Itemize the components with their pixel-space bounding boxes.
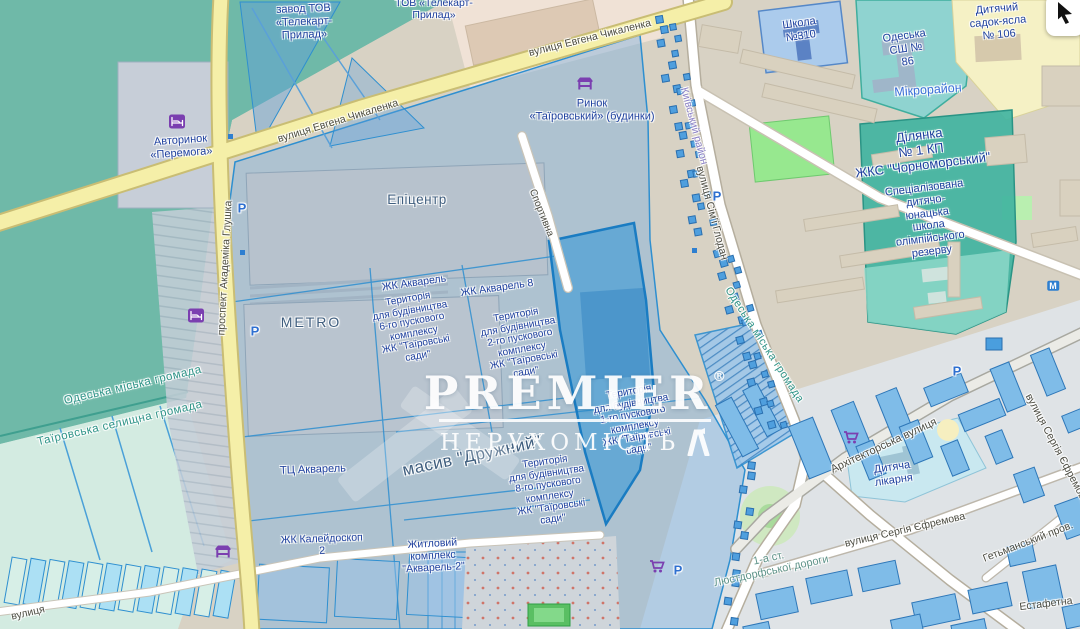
building <box>1022 565 1063 609</box>
garage-stall <box>754 352 761 359</box>
garage-stall <box>675 35 682 42</box>
garage-stall <box>748 462 756 470</box>
garage-stall <box>730 618 738 626</box>
garage-stall <box>747 472 755 480</box>
garage-stall <box>727 255 734 262</box>
land-parcel <box>406 555 467 618</box>
garage-stall <box>743 352 752 361</box>
garage-stall <box>668 61 676 69</box>
garage-stall <box>691 140 698 147</box>
building <box>1060 180 1080 216</box>
garage-stall <box>704 192 711 199</box>
garage-stall <box>688 216 696 224</box>
garage-stall <box>695 151 702 158</box>
garage-stall <box>698 203 705 210</box>
garage-stall <box>732 570 740 578</box>
garage-stall <box>670 24 677 31</box>
map-graphics <box>0 0 1080 629</box>
garage-stall <box>732 579 740 587</box>
garage-stall <box>693 170 700 177</box>
garage-stall <box>734 521 742 529</box>
garage-stall <box>746 508 754 516</box>
garage-stall <box>683 73 690 80</box>
garage-stall <box>741 532 749 540</box>
garage-stall <box>767 400 774 407</box>
garage-stall <box>689 100 696 107</box>
garage-stall <box>669 106 677 114</box>
garage-stall <box>657 39 665 47</box>
garage-stall <box>732 553 740 561</box>
garage-stall <box>680 179 688 187</box>
cursor-arrow-icon <box>1054 1 1076 30</box>
garage-stall <box>713 249 722 258</box>
garage-stall <box>710 219 717 226</box>
building <box>948 242 960 297</box>
garage-stall <box>734 267 741 274</box>
garage-stall <box>754 407 763 416</box>
garage-stall <box>742 319 749 326</box>
garage-stall <box>661 74 669 82</box>
garage-stall <box>767 420 776 429</box>
garage-stall <box>736 336 745 345</box>
garage-stall <box>655 15 663 23</box>
map-canvas[interactable]: вулиця Евгена Чикаленкавулиця Евгена Чик… <box>0 0 1080 629</box>
garage-stall <box>692 194 700 202</box>
garage-stall <box>731 293 740 302</box>
garage-stall <box>719 259 728 268</box>
garage-stall <box>679 131 687 139</box>
garage-stall <box>718 272 727 281</box>
garage-stall <box>725 306 734 315</box>
garage-stall <box>748 360 757 369</box>
garage-stall <box>672 50 679 57</box>
garage-stall <box>660 26 668 34</box>
garage-stall <box>724 597 732 605</box>
building <box>1042 66 1080 106</box>
garage-stall <box>747 304 754 311</box>
garage-stall <box>768 381 775 388</box>
garage-stall <box>677 88 684 95</box>
garage-stall <box>675 122 683 130</box>
garage-stall <box>761 370 768 377</box>
garage-stall <box>747 378 756 387</box>
building <box>985 134 1027 165</box>
garage-stall <box>694 228 702 236</box>
land-parcel <box>335 558 400 619</box>
garage-stall <box>685 122 692 129</box>
garage-stall <box>676 150 684 158</box>
cursor-tool-button[interactable] <box>1046 0 1080 36</box>
garage-stall <box>739 486 747 494</box>
garage-stall <box>780 421 787 428</box>
garage-stall <box>733 281 740 288</box>
